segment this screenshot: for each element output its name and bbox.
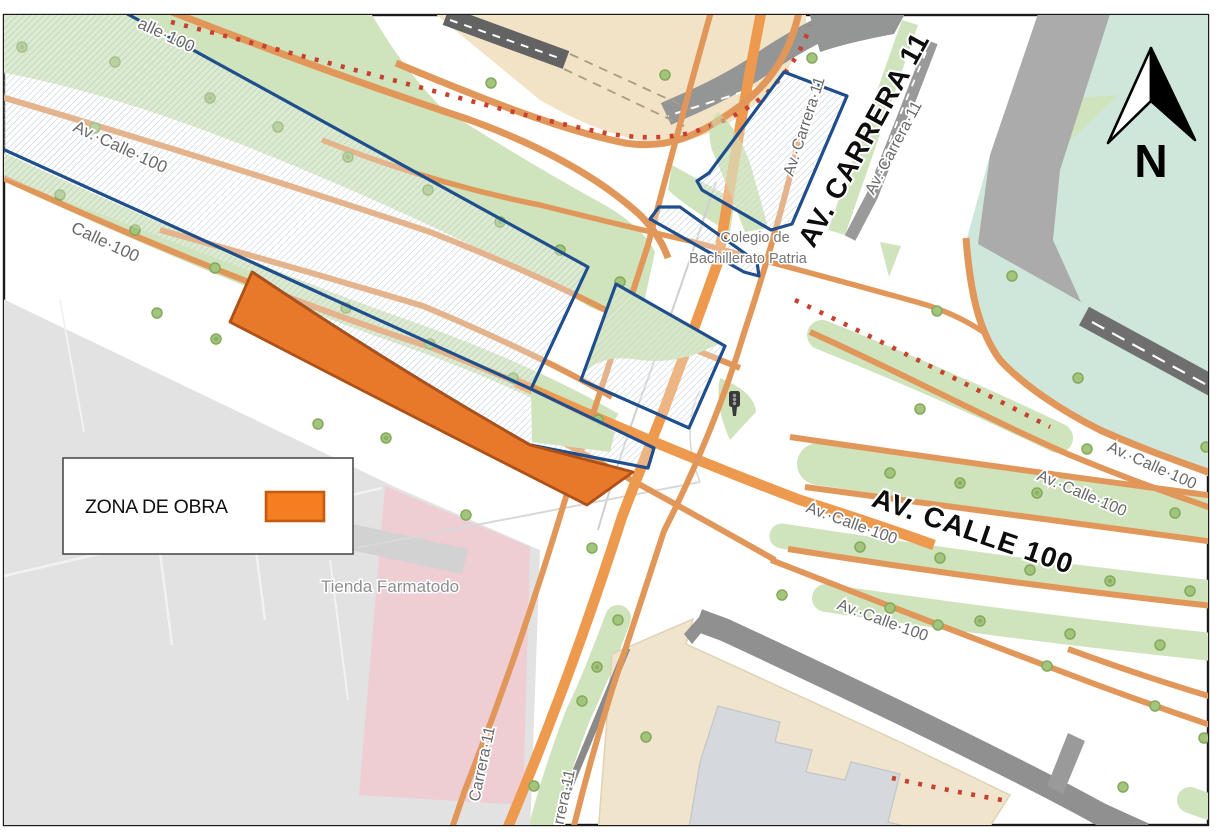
svg-text:Tienda Farmatodo: Tienda Farmatodo	[321, 577, 459, 596]
svg-text:N: N	[1134, 135, 1167, 187]
svg-text:Bachillerato Patria: Bachillerato Patria	[689, 251, 808, 267]
svg-text:Colegio de: Colegio de	[720, 230, 789, 246]
svg-text:ZONA DE OBRA: ZONA DE OBRA	[85, 496, 228, 518]
